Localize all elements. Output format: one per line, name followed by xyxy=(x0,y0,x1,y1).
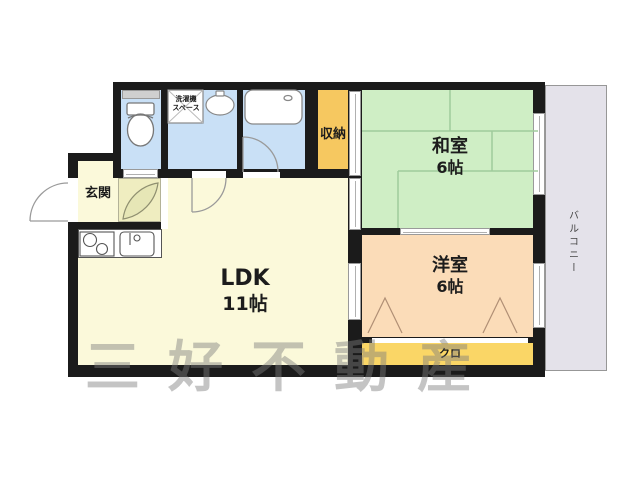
ldk-label: LDK 11帖 xyxy=(160,266,330,317)
floor-plan: 和室 6帖 洋室 6帖 LDK 11帖 玄関 収納 クロ バルコニー 洗濯機 ス… xyxy=(0,0,640,480)
room-size: 6帖 xyxy=(436,277,463,296)
japanese-room-label: 和室 6帖 xyxy=(362,137,538,178)
toilet-icon xyxy=(127,103,154,146)
bathroom-door-swing-icon xyxy=(243,137,278,172)
room-name: LDK xyxy=(220,266,269,291)
room-size: 11帖 xyxy=(222,293,267,315)
laundry-line2: スペース xyxy=(172,104,199,112)
kitchen-sink-icon xyxy=(120,232,154,256)
washroom-door-swing-icon xyxy=(192,178,226,212)
balcony-label: バルコニー xyxy=(566,192,578,292)
western-room-label: 洋室 6帖 xyxy=(362,256,538,297)
entrance-label: 玄関 xyxy=(76,187,120,202)
storage-label: 収納 xyxy=(315,128,351,143)
laundry-line1: 洗濯機 xyxy=(176,95,197,103)
room-name: 和室 xyxy=(432,136,468,157)
hall-door-swing-icon xyxy=(123,183,158,219)
washbasin-icon xyxy=(206,91,234,115)
room-name: 洋室 xyxy=(432,255,468,276)
laundry-space-label: 洗濯機 スペース xyxy=(166,95,206,113)
fixtures-layer xyxy=(0,0,640,480)
stove-burners-icon xyxy=(80,232,114,256)
front-door-swing-icon xyxy=(30,183,68,221)
bathtub-icon xyxy=(245,90,302,124)
watermark-text: 三好不動産 xyxy=(85,322,500,402)
room-size: 6帖 xyxy=(436,158,463,177)
